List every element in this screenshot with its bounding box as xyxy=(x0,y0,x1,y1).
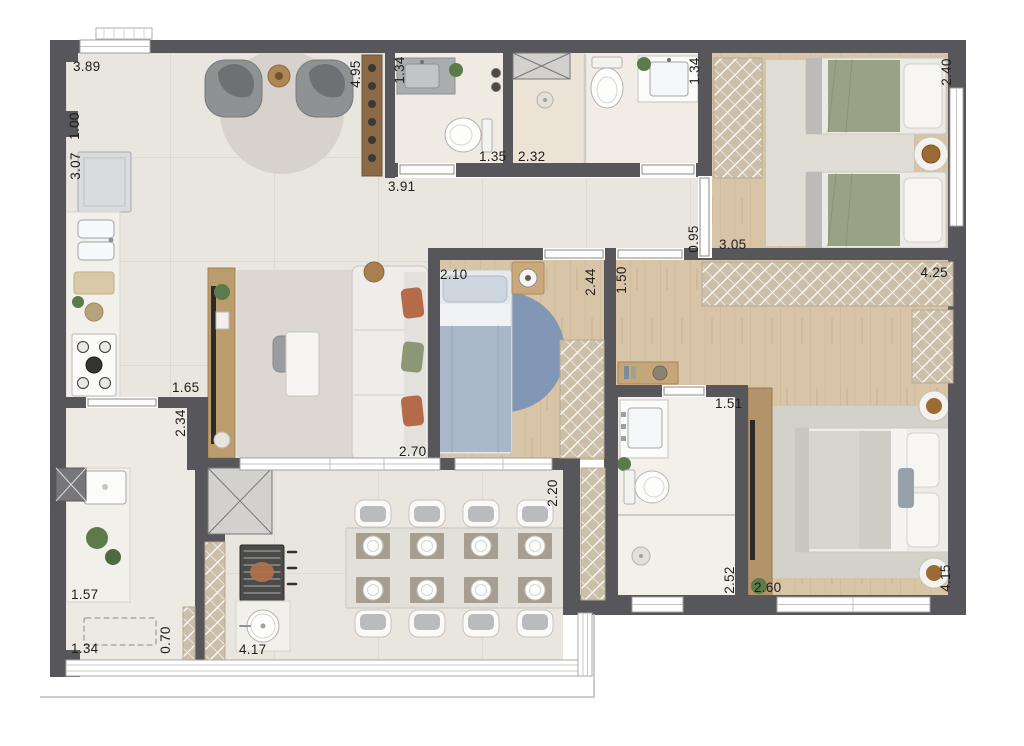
sheet-fold xyxy=(440,304,510,326)
sofa-side-table xyxy=(364,262,384,282)
dim-suite-closet: 4.25 xyxy=(921,265,948,280)
dim-shower-width: 2.32 xyxy=(518,149,545,164)
pillow xyxy=(904,178,942,242)
plant xyxy=(72,296,84,308)
living-window xyxy=(80,40,150,53)
coffee-table xyxy=(286,332,319,396)
pillow-sage xyxy=(400,341,424,373)
dim-social-bath: 1.34 xyxy=(687,57,702,85)
laundry-drain xyxy=(102,484,108,490)
dim-suite-entry: 2.60 xyxy=(754,580,781,595)
kitchen-faucet xyxy=(109,238,114,243)
bed-foot-throw xyxy=(806,172,822,248)
dim-terrace-depth: 2.20 xyxy=(545,479,560,506)
dim-lavabo-door: 1.35 xyxy=(479,149,506,164)
lavabo-sink xyxy=(405,64,439,88)
bedroom2-door xyxy=(543,248,605,260)
sofa xyxy=(352,266,428,460)
floor-plan-page: 3.89 1.00 3.07 4.95 1.34 1.35 2.32 3.91 … xyxy=(0,0,1024,746)
duvet-sage xyxy=(828,60,900,132)
plant xyxy=(449,63,463,77)
shaft-box xyxy=(513,53,570,79)
suite-toilet xyxy=(624,470,669,504)
lavabo-toilet xyxy=(445,118,492,152)
suite-closet-vertical xyxy=(912,310,953,383)
wall-bedroom2-bottom-a xyxy=(440,458,455,470)
duvet-quilt xyxy=(859,431,891,549)
hallway-floor xyxy=(385,178,712,248)
social-bath-door xyxy=(640,163,696,177)
console-decor xyxy=(216,312,229,329)
wall-terrace-right xyxy=(563,458,580,615)
shower-drain-dot xyxy=(543,98,547,102)
cooktop xyxy=(72,334,116,396)
lavabo-faucet xyxy=(420,60,424,64)
wall-suitebath-left xyxy=(605,385,618,615)
suitebath-window xyxy=(632,597,683,612)
duvet xyxy=(809,431,859,549)
cutting-board xyxy=(74,272,114,294)
bedroom2-wardrobe xyxy=(560,340,604,458)
dim-bedroom2-width: 2.10 xyxy=(440,267,467,282)
between-beds-tray xyxy=(922,145,940,163)
plant xyxy=(637,57,651,71)
dim-suite-hall: 1.50 xyxy=(614,266,629,293)
bed-foot-throw xyxy=(806,58,822,134)
suite-tv-screen xyxy=(750,420,755,560)
kitchen-sink-bowl xyxy=(78,220,114,238)
shaft-box xyxy=(208,468,272,534)
suite-bed xyxy=(795,428,950,552)
suite-door xyxy=(616,248,684,260)
wood-bowl xyxy=(85,303,103,321)
plant xyxy=(214,284,230,300)
dim-laundry-width: 1.57 xyxy=(71,587,98,602)
twin-bed xyxy=(806,172,946,248)
dim-laundry-bench-w: 1.34 xyxy=(71,641,99,656)
suite-vanity xyxy=(620,400,668,458)
suite-closet xyxy=(702,262,953,306)
shower-drain-dot xyxy=(639,554,643,558)
twin-window xyxy=(950,88,963,226)
wall-laundry-right xyxy=(187,397,208,470)
pillow-terracotta xyxy=(400,395,424,427)
floor-plan-canvas: 3.89 1.00 3.07 4.95 1.34 1.35 2.32 3.91 … xyxy=(0,0,1024,746)
dim-twin-depth: 2.40 xyxy=(939,58,954,85)
dim-living-depth: 4.95 xyxy=(348,60,363,87)
dim-suite-depth: 4.15 xyxy=(938,564,953,591)
pillow-terracotta xyxy=(400,287,424,319)
dim-suitebath-depth: 2.52 xyxy=(722,566,737,593)
wall-bedroom2-bottom-b xyxy=(552,458,580,470)
dim-bedroom2-depth: 2.70 xyxy=(399,444,426,459)
terrace-sliding-door xyxy=(240,458,440,470)
column-hatched xyxy=(581,468,605,600)
twin-bed xyxy=(806,58,946,134)
tv-screen xyxy=(211,286,216,444)
dim-lavabo-width: 1.34 xyxy=(392,56,407,84)
duvet xyxy=(440,326,511,452)
bedroom2-bed xyxy=(438,270,512,454)
twin-wardrobe xyxy=(714,58,762,178)
shaft-box xyxy=(56,468,86,501)
dim-twin-width: 3.05 xyxy=(719,237,746,252)
dim-kitchen-passage: 2.34 xyxy=(173,409,188,437)
dim-hall-length: 3.91 xyxy=(388,179,415,194)
dim-laundry-bench-d: 0.70 xyxy=(158,626,173,653)
duvet-sage xyxy=(828,174,900,246)
side-table-decor xyxy=(275,72,283,80)
suite-window xyxy=(777,597,930,612)
suite-bath-door xyxy=(662,385,706,397)
column-hatched xyxy=(205,542,225,660)
wall-bedroom2-left xyxy=(428,248,440,470)
bed-foot-throw xyxy=(795,428,809,552)
wall-decor-round xyxy=(492,69,501,78)
plant xyxy=(617,457,631,471)
wall-top xyxy=(50,40,966,53)
pillow xyxy=(904,64,942,128)
table-lamp-center xyxy=(525,275,531,281)
social-toilet xyxy=(591,57,623,108)
console-bowl xyxy=(214,432,230,448)
dim-kitchen-left: 3.07 xyxy=(68,152,83,179)
kitchen-sink-bowl xyxy=(78,242,114,260)
wall-decor-round xyxy=(492,83,501,92)
lavabo-door xyxy=(398,163,456,177)
dim-suitebath-width: 1.51 xyxy=(715,396,742,411)
accent-pillow xyxy=(898,468,914,508)
window-planter xyxy=(96,28,152,39)
laundry-door xyxy=(86,397,158,408)
dim-left-wall: 1.00 xyxy=(67,112,82,139)
dim-terrace-width: 4.17 xyxy=(239,642,266,657)
suite-nightstand-tray xyxy=(926,398,942,414)
dim-twin-door: 0.95 xyxy=(686,225,701,252)
plant xyxy=(105,549,121,565)
plant xyxy=(86,527,108,549)
bedroom2-window xyxy=(455,458,552,470)
dim-bedroom2-wall: 2.44 xyxy=(583,268,598,296)
dim-kitchen-opening: 1.65 xyxy=(172,380,199,395)
fridge xyxy=(78,152,131,212)
column-hatched xyxy=(183,607,195,660)
dim-living-window: 3.89 xyxy=(73,59,100,74)
suite-desk xyxy=(618,362,678,384)
